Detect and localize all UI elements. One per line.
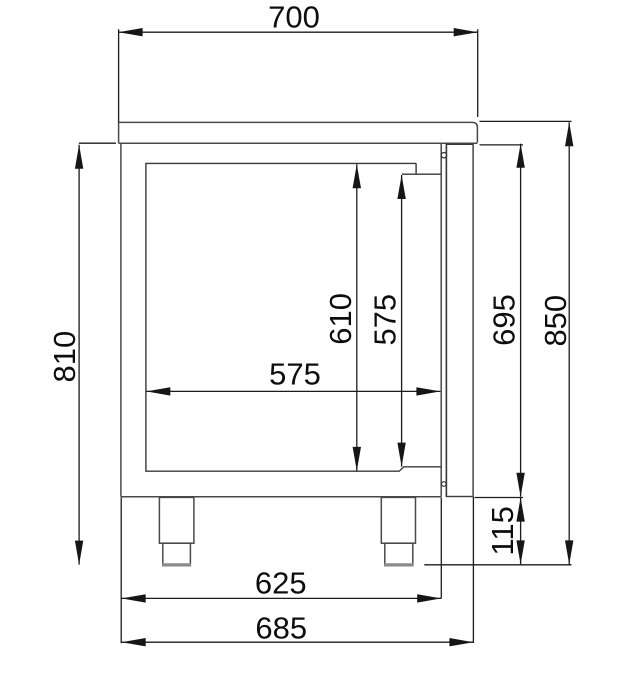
svg-text:685: 685 (255, 611, 307, 646)
svg-text:625: 625 (255, 566, 307, 601)
svg-text:115: 115 (485, 506, 520, 555)
svg-text:575: 575 (269, 357, 321, 392)
svg-text:850: 850 (538, 295, 573, 347)
svg-text:700: 700 (268, 0, 320, 35)
svg-text:695: 695 (486, 294, 521, 346)
svg-text:810: 810 (47, 331, 82, 383)
svg-text:575: 575 (367, 294, 402, 346)
svg-text:610: 610 (323, 293, 358, 345)
